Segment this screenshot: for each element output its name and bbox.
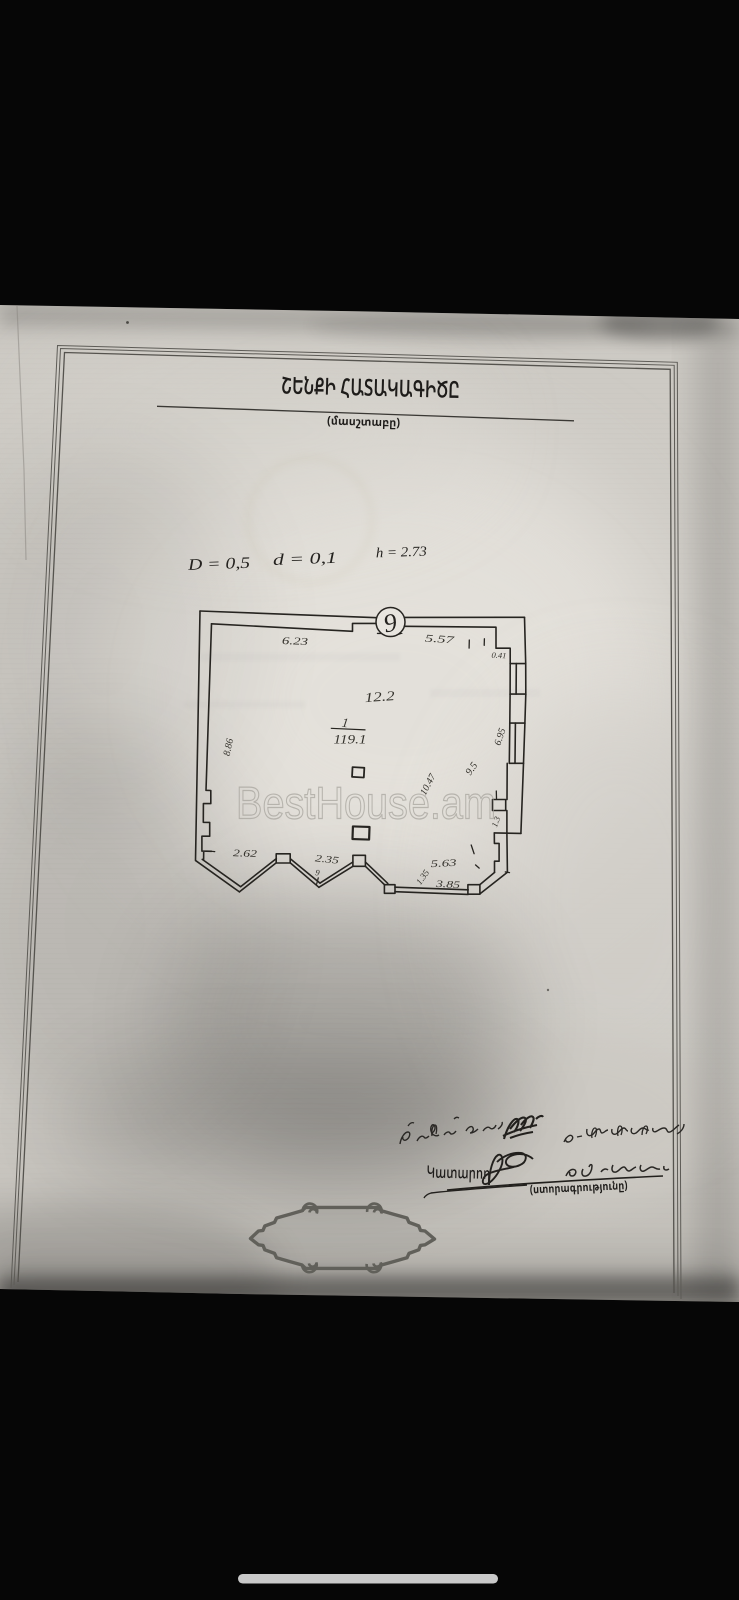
svg-text:h = 2.73: h = 2.73 <box>376 545 427 562</box>
svg-text:0.41: 0.41 <box>491 651 506 661</box>
svg-text:D = 0,5: D = 0,5 <box>187 555 251 574</box>
svg-text:d = 0,1: d = 0,1 <box>273 550 338 569</box>
svg-text:2.62: 2.62 <box>233 848 257 860</box>
svg-text:5.57: 5.57 <box>425 633 456 646</box>
svg-text:12.2: 12.2 <box>364 688 395 705</box>
svg-text:3.85: 3.85 <box>434 879 460 891</box>
svg-text:BestHouse.am: BestHouse.am <box>236 778 496 829</box>
svg-text:6.23: 6.23 <box>282 636 308 648</box>
svg-text:5.63: 5.63 <box>430 858 457 870</box>
svg-text:119.1: 119.1 <box>334 733 367 747</box>
